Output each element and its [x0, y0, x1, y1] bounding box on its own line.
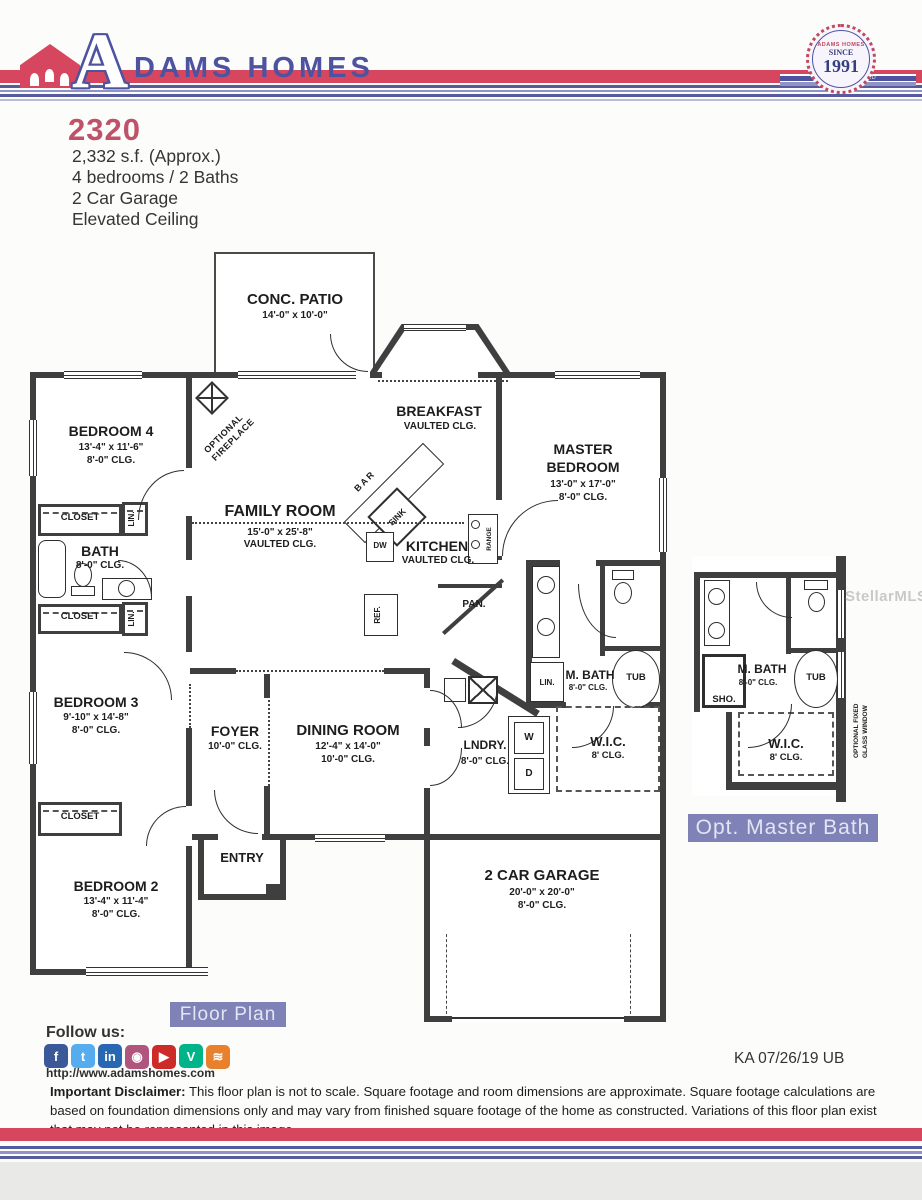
youtube-icon[interactable]: ▶ — [152, 1045, 176, 1069]
wall — [596, 560, 666, 566]
garage-door-line — [452, 1017, 624, 1019]
room-dims-dining: 12'-4" x 14'-0" — [315, 740, 380, 753]
opt-tub-label: TUB — [806, 672, 826, 684]
plan-ceiling: Elevated Ceiling — [72, 209, 198, 230]
entry-step — [266, 884, 284, 900]
room-clg-laundry: 8'-0" CLG. — [461, 755, 509, 768]
room-clg-mbath: 8'-0" CLG. — [569, 683, 608, 693]
closet-label: CLOSET — [61, 611, 100, 623]
opt-wic-label: W.I.C. — [768, 736, 803, 753]
wall — [190, 668, 236, 674]
room-label-bath: BATH — [81, 542, 119, 560]
room-label-entry: ENTRY — [220, 850, 264, 867]
room-dims-bedroom2: 13'-4" x 11'-4" — [84, 895, 149, 908]
bedroom2-door-opening — [186, 806, 192, 846]
closet-label: CLOSET — [61, 512, 100, 524]
mbath-sink — [537, 618, 555, 636]
linen-label: LIN. — [127, 511, 136, 526]
room-label-breakfast: BREAKFAST — [396, 402, 482, 420]
window — [86, 967, 208, 976]
room-label-patio: CONC. PATIO — [247, 290, 343, 310]
opt-sink — [708, 622, 725, 639]
mbath-linen-label: LIN. — [539, 678, 554, 688]
tub-label: TUB — [626, 672, 646, 684]
room-label-dining: DINING ROOM — [296, 721, 399, 741]
house-window — [30, 73, 39, 86]
room-clg-kitchen: VAULTED CLG. — [402, 554, 474, 567]
dryer-label: D — [525, 767, 532, 780]
window — [29, 692, 37, 764]
shower-label: SHO. — [712, 694, 735, 706]
adams-homes-house-icon — [20, 44, 80, 88]
room-clg-breakfast: VAULTED CLG. — [404, 420, 476, 433]
footer-stripe — [0, 1151, 922, 1154]
room-clg-garage: 8'-0" CLG. — [518, 899, 566, 912]
twitter-icon[interactable]: t — [71, 1044, 95, 1068]
room-dims-garage: 20'-0" x 20'-0" — [509, 886, 574, 899]
facebook-icon[interactable]: f — [44, 1044, 68, 1068]
room-label-foyer: FOYER — [211, 722, 259, 740]
closet-label: CLOSET — [61, 811, 100, 823]
linen-label: LIN. — [127, 611, 136, 626]
opt-master-bath-chip: Opt. Master Bath — [688, 814, 878, 842]
room-label-wic: W.I.C. — [590, 734, 625, 751]
range-burner — [471, 520, 480, 529]
wall — [726, 782, 842, 790]
room-clg-foyer: 10'-0" CLG. — [208, 740, 262, 753]
cased-opening-line — [236, 670, 384, 672]
window — [837, 590, 845, 638]
vine-icon[interactable]: V — [179, 1044, 203, 1068]
room-clg-dining: 10'-0" CLG. — [321, 753, 375, 766]
revision-code: KA 07/26/19 UB — [734, 1050, 844, 1068]
room-label-bedroom4: BEDROOM 4 — [69, 422, 154, 440]
washer-label: W — [524, 731, 533, 744]
bath-door-opening — [186, 560, 192, 596]
house-window — [45, 69, 54, 82]
bay-window — [404, 324, 466, 331]
bedroom4-door-opening — [186, 468, 192, 516]
pantry-label: PAN. — [462, 598, 485, 611]
window — [315, 834, 385, 842]
wall — [694, 572, 842, 578]
wall — [694, 646, 700, 712]
vault-line — [378, 380, 508, 382]
room-label-garage: 2 CAR GARAGE — [484, 866, 599, 886]
plan-sqft: 2,332 s.f. (Approx.) — [72, 146, 221, 167]
room-label-laundry: LNDRY. — [464, 738, 507, 754]
toilet-tank — [804, 580, 828, 590]
website-link[interactable]: http://www.adamshomes.com — [46, 1066, 215, 1080]
footer-red-band — [0, 1128, 922, 1141]
room-dims-patio: 14'-0" x 10'-0" — [262, 309, 327, 322]
room-dims-bedroom3: 9'-10" x 14'-8" — [63, 711, 128, 724]
floor-plan-chip: Floor Plan — [170, 1002, 286, 1027]
linkedin-icon[interactable]: in — [98, 1044, 122, 1068]
toilet — [614, 582, 632, 604]
room-label-bedroom3: BEDROOM 3 — [54, 693, 139, 711]
room-label-bedroom2: BEDROOM 2 — [74, 877, 159, 895]
toilet — [808, 592, 825, 612]
plan-garage: 2 Car Garage — [72, 188, 178, 209]
brand-initial: A — [72, 16, 128, 106]
range-burner — [471, 540, 480, 549]
room-clg-master: 8'-0" CLG. — [559, 491, 607, 504]
cased-opening-line — [189, 684, 191, 728]
seal-inner: ADAMS HOMES SINCE 1991 — [812, 30, 870, 88]
window — [29, 420, 37, 476]
wall — [264, 674, 270, 698]
toilet-tank — [612, 570, 634, 580]
footer-stripe — [0, 1146, 922, 1149]
wall — [694, 572, 700, 656]
front-door-opening — [218, 834, 262, 840]
wall — [384, 668, 430, 674]
room-clg-bedroom4: 8'-0" CLG. — [87, 454, 135, 467]
bay-opening — [382, 370, 478, 380]
dishwasher-label: DW — [373, 541, 386, 551]
wall — [726, 712, 732, 788]
room-clg-bath: 8'-0" CLG. — [76, 559, 124, 572]
sliding-door-window — [238, 371, 356, 379]
header-stripe — [0, 99, 922, 101]
room-dims-master: 13'-0" x 17'-0" — [550, 478, 615, 491]
flyer-page: A DAMS HOMES VALUE SWIFT FID ADAMS HOMES… — [0, 0, 922, 1200]
room-label-master: MASTER BEDROOM — [546, 440, 619, 476]
plan-model-number: 2320 — [68, 112, 141, 148]
header-stripe — [0, 90, 922, 92]
opt-window-note: OPTIONAL FIXED GLASS WINDOW — [852, 648, 870, 758]
window — [555, 371, 640, 379]
social-icons-row: ftin◉▶V≋ — [44, 1044, 233, 1069]
room-label-family: FAMILY ROOM — [224, 502, 335, 523]
page-bottom-edge — [0, 1162, 922, 1200]
refrigerator-label: REF. — [373, 606, 382, 623]
brand-name: DAMS HOMES — [134, 52, 374, 85]
room-clg-family: VAULTED CLG. — [244, 538, 316, 551]
rss-icon[interactable]: ≋ — [206, 1045, 230, 1069]
opt-wic-clg: 8' CLG. — [770, 752, 803, 764]
disclaimer-title: Important Disclaimer: — [50, 1084, 186, 1099]
garage-door-dash — [630, 934, 631, 1014]
toilet-tank — [71, 586, 95, 596]
cased-opening-line — [268, 700, 270, 786]
opt-mbath-label: M. BATH — [737, 662, 786, 678]
opt-sink — [708, 588, 725, 605]
window — [659, 478, 667, 552]
seal-year: 1991 — [823, 57, 859, 75]
house-window — [60, 73, 69, 86]
room-clg-wic: 8' CLG. — [592, 750, 625, 762]
since-1991-seal: ADAMS HOMES SINCE 1991 — [806, 24, 876, 94]
room-clg-bedroom3: 8'-0" CLG. — [72, 724, 120, 737]
plan-beds-baths: 4 bedrooms / 2 Baths — [72, 167, 238, 188]
window — [64, 371, 142, 379]
stellar-mls-watermark: StellarMLS — [845, 588, 922, 605]
window — [837, 652, 845, 698]
opt-mbath-clg: 8'-0" CLG. — [739, 678, 778, 688]
mbath-sink — [537, 576, 555, 594]
footer-stripe — [0, 1156, 922, 1159]
bathtub — [38, 540, 66, 598]
garage-door-dash — [446, 934, 447, 1014]
header-stripe — [0, 94, 922, 97]
instagram-icon[interactable]: ◉ — [125, 1045, 149, 1069]
room-label-mbath: M. BATH — [565, 668, 614, 684]
room-label-kitchen: KITCHEN — [406, 537, 468, 555]
wall — [264, 786, 270, 834]
room-clg-bedroom2: 8'-0" CLG. — [92, 908, 140, 921]
range-label: RANGE — [486, 527, 493, 550]
room-dims-bedroom4: 13'-4" x 11'-6" — [79, 441, 144, 454]
follow-us-label: Follow us: — [46, 1024, 125, 1042]
